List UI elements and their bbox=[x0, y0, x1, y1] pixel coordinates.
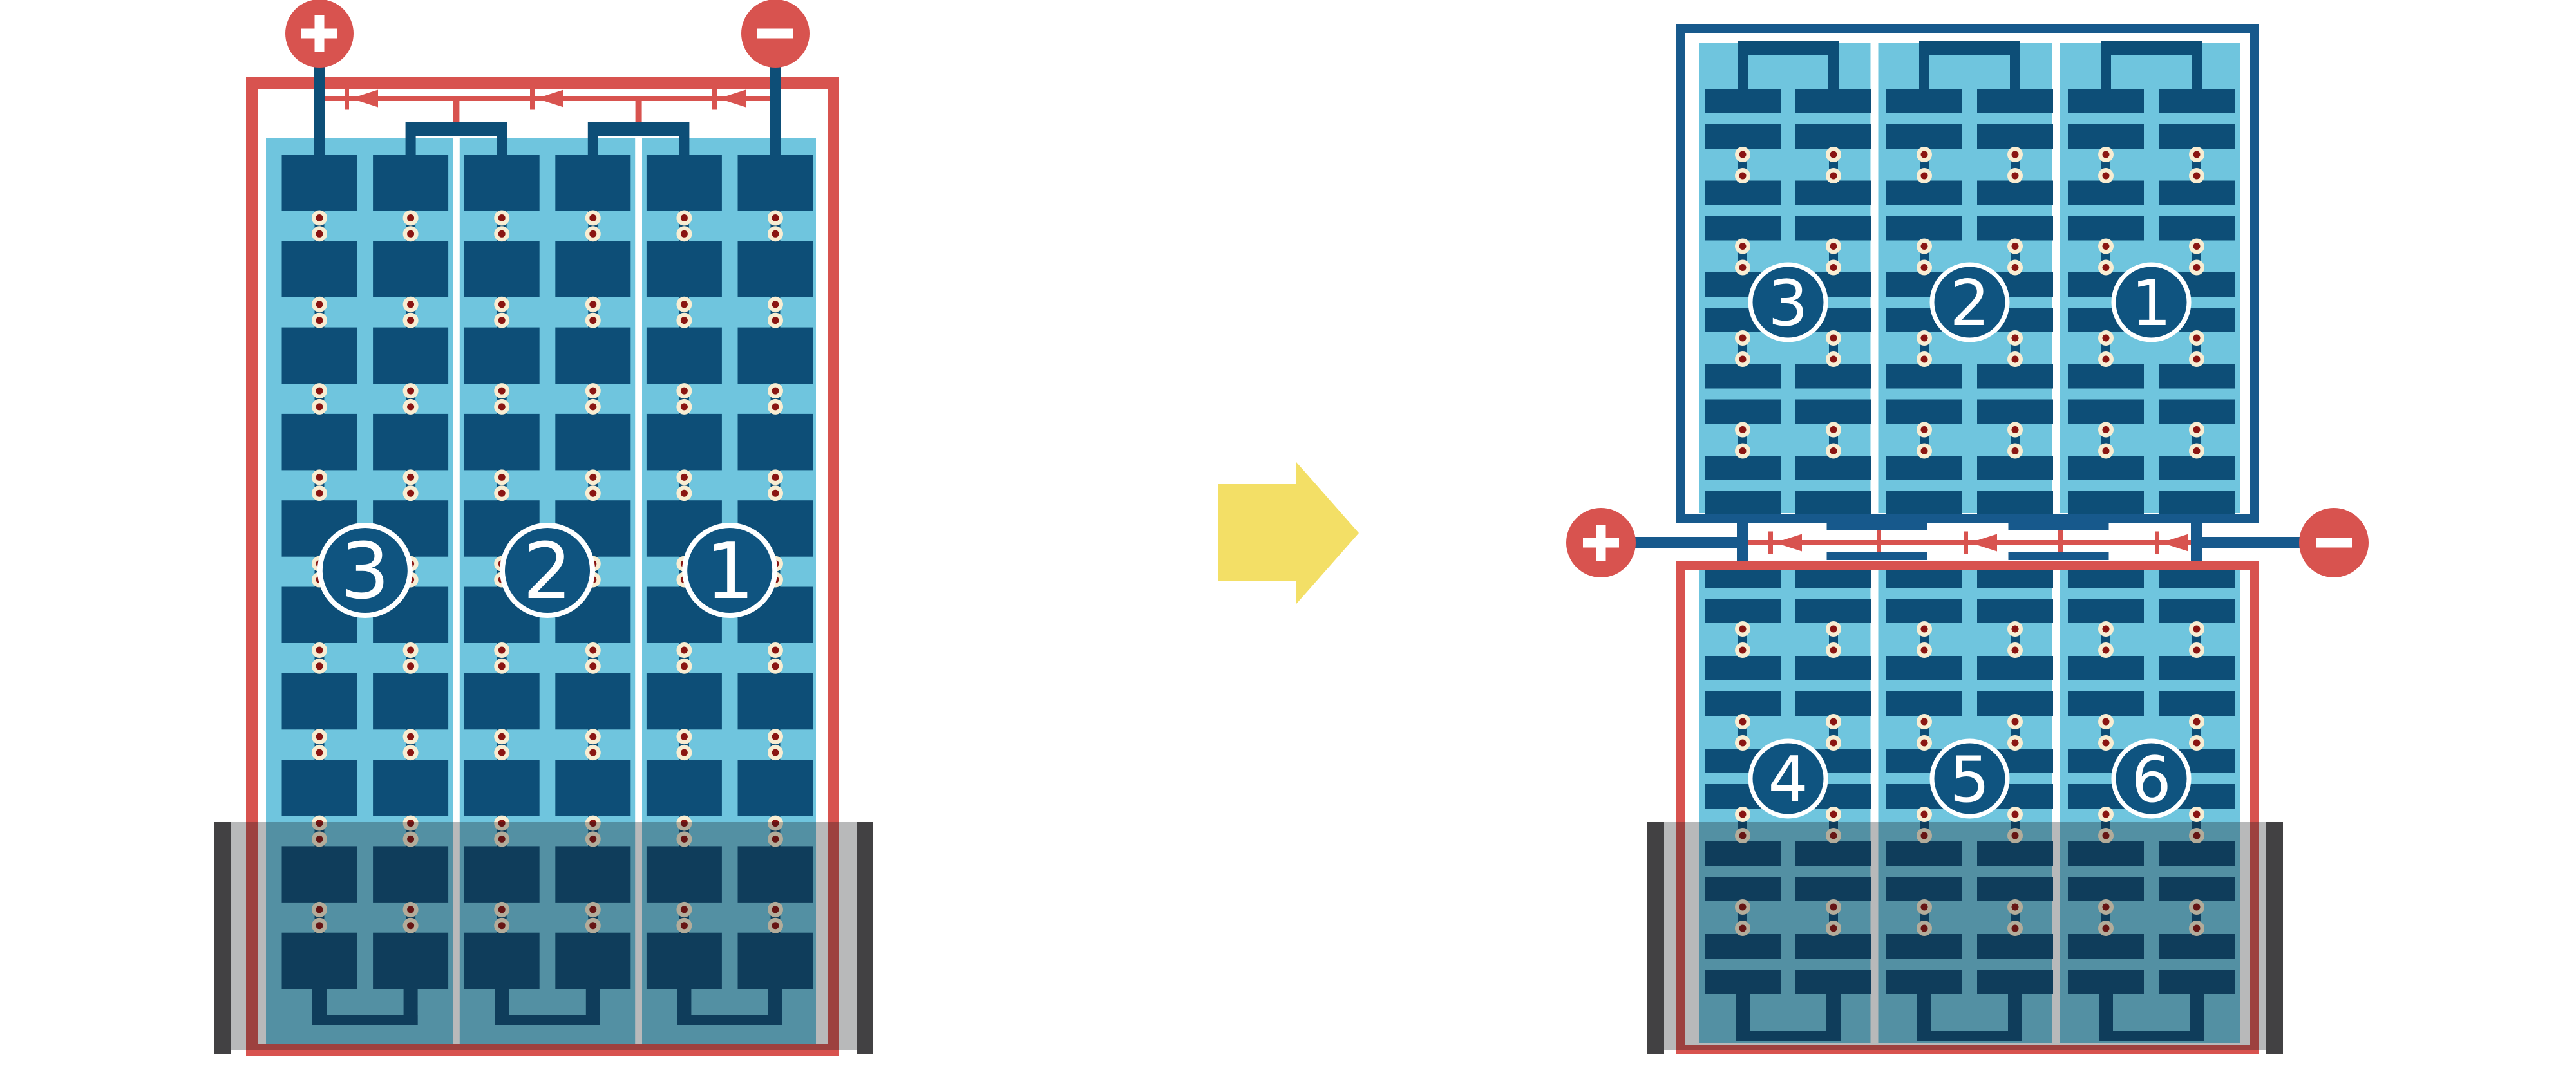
solar-cell bbox=[1886, 400, 1962, 424]
solder-dot-core bbox=[681, 490, 688, 497]
solar-cell bbox=[1886, 364, 1962, 389]
solder-dot-core bbox=[2103, 335, 2110, 342]
solder-dot-core bbox=[498, 749, 506, 756]
solder-dot-core bbox=[2103, 447, 2110, 454]
solder-dot-core bbox=[681, 474, 688, 481]
solder-dot-core bbox=[2012, 151, 2019, 158]
solder-dot-core bbox=[2012, 243, 2019, 250]
solder-dot-core bbox=[2103, 151, 2110, 158]
solder-dot-core bbox=[316, 490, 323, 497]
solder-dot-core bbox=[772, 230, 779, 238]
solar-cell bbox=[738, 328, 813, 384]
solder-dot-core bbox=[1739, 151, 1747, 158]
solar-cell bbox=[2068, 364, 2144, 389]
solder-dot-core bbox=[772, 733, 779, 740]
solder-dot-core bbox=[772, 662, 779, 670]
solder-dot-core bbox=[589, 749, 596, 756]
junction-tab bbox=[2009, 552, 2109, 560]
solar-cell bbox=[1977, 400, 2053, 424]
badge-number: 6 bbox=[2131, 744, 2171, 817]
solder-dot-core bbox=[2193, 647, 2201, 654]
solder-dot-core bbox=[407, 230, 414, 238]
solar-cell bbox=[2159, 691, 2235, 716]
solder-dot-core bbox=[2103, 626, 2110, 633]
solar-cell bbox=[1886, 570, 1962, 588]
solder-dot-core bbox=[2103, 264, 2110, 271]
solder-dot-core bbox=[407, 662, 414, 670]
junction-tab bbox=[2009, 523, 2109, 530]
solder-dot-core bbox=[681, 403, 688, 410]
string-bridge-leg bbox=[406, 136, 416, 156]
solder-dot-core bbox=[1739, 447, 1747, 454]
badge-number: 1 bbox=[705, 527, 754, 617]
solder-dot-core bbox=[1921, 356, 1928, 363]
string-bridge-leg bbox=[2010, 55, 2020, 89]
solar-cell bbox=[1886, 89, 1962, 113]
solder-dot-core bbox=[2103, 740, 2110, 747]
solar-cell bbox=[1886, 656, 1962, 680]
solder-dot-core bbox=[1830, 264, 1837, 271]
solar-cell bbox=[282, 414, 357, 471]
solar-cell bbox=[1795, 181, 1871, 205]
solder-dot-core bbox=[1739, 811, 1747, 818]
string-bridge-leg bbox=[2101, 55, 2111, 89]
solder-dot-core bbox=[2193, 356, 2201, 363]
flood-cap bbox=[2266, 822, 2283, 1054]
solar-cell bbox=[464, 155, 540, 211]
solar-cell bbox=[1705, 456, 1781, 480]
string-badge: 3 bbox=[1748, 263, 1828, 342]
solar-cell bbox=[2159, 656, 2235, 680]
badge-number: 3 bbox=[1768, 267, 1808, 341]
solar-cell bbox=[373, 155, 448, 211]
solder-dot-core bbox=[1830, 647, 1837, 654]
solder-dot-core bbox=[2193, 718, 2201, 726]
solar-cell bbox=[373, 414, 448, 471]
solder-dot-core bbox=[2012, 356, 2019, 363]
solder-dot-core bbox=[407, 749, 414, 756]
solar-cell bbox=[647, 414, 722, 471]
solder-dot-core bbox=[1739, 264, 1747, 271]
solar-cell bbox=[373, 328, 448, 384]
solder-dot-core bbox=[589, 662, 596, 670]
string-bridge-bar bbox=[2101, 41, 2202, 55]
badge-number: 3 bbox=[341, 527, 390, 617]
solar-cell bbox=[1795, 364, 1871, 389]
solder-dot-core bbox=[2103, 356, 2110, 363]
solar-cell bbox=[2068, 491, 2144, 516]
badge-number: 4 bbox=[1768, 744, 1808, 817]
diode-tap bbox=[1877, 529, 1881, 555]
solder-dot-core bbox=[1921, 426, 1928, 433]
solder-dot-core bbox=[1739, 173, 1747, 180]
solder-dot-core bbox=[1830, 718, 1837, 726]
solar-cell bbox=[2068, 181, 2144, 205]
solar-cell bbox=[1795, 570, 1871, 588]
solar-cell bbox=[1977, 570, 2053, 588]
solder-dot-core bbox=[2012, 647, 2019, 654]
solder-dot-core bbox=[498, 214, 506, 221]
string-bridge-leg bbox=[2192, 55, 2202, 89]
solder-dot-core bbox=[2193, 426, 2201, 433]
solar-cell bbox=[2159, 364, 2235, 389]
solar-cell bbox=[555, 241, 630, 297]
terminal-wire bbox=[2197, 537, 2301, 548]
solar-cell bbox=[1795, 691, 1871, 716]
string-bridge-leg bbox=[1738, 55, 1748, 89]
solar-cell bbox=[2068, 691, 2144, 716]
solder-dot-core bbox=[498, 733, 506, 740]
string-bridge-leg bbox=[497, 136, 507, 156]
solar-cell bbox=[647, 241, 722, 297]
solder-dot-core bbox=[1921, 626, 1928, 633]
solar-cell bbox=[1795, 216, 1871, 241]
solder-dot-core bbox=[498, 301, 506, 308]
solar-cell bbox=[2159, 216, 2235, 241]
solder-dot-core bbox=[316, 662, 323, 670]
solder-dot-core bbox=[1830, 811, 1837, 818]
solar-cell bbox=[2068, 570, 2144, 588]
solar-cell bbox=[738, 673, 813, 730]
bypass-diode-bar bbox=[712, 88, 717, 110]
solder-dot-core bbox=[1830, 151, 1837, 158]
solar-cell bbox=[555, 414, 630, 471]
terminal-wire bbox=[314, 59, 325, 161]
bypass-diode-arrow bbox=[1775, 534, 1802, 552]
solar-cell bbox=[464, 760, 540, 816]
solder-dot-core bbox=[1830, 426, 1837, 433]
string-bridge-bar bbox=[1919, 41, 2020, 55]
terminal-wire bbox=[770, 59, 781, 161]
solar-cell bbox=[2068, 216, 2144, 241]
solder-dot-core bbox=[1921, 151, 1928, 158]
solar-cell bbox=[2159, 456, 2235, 480]
solder-dot-core bbox=[1830, 626, 1837, 633]
solder-dot-core bbox=[1921, 740, 1928, 747]
solder-dot-core bbox=[1739, 740, 1747, 747]
diode-bus bbox=[1748, 540, 2191, 545]
string-bridge-leg bbox=[588, 136, 598, 156]
solar-cell bbox=[1977, 364, 2053, 389]
solar-cell bbox=[1977, 216, 2053, 241]
solder-dot-core bbox=[681, 733, 688, 740]
solar-cell bbox=[738, 760, 813, 816]
solar-cell bbox=[2159, 491, 2235, 516]
bypass-diode-bar bbox=[1768, 532, 1773, 554]
solder-dot-core bbox=[407, 490, 414, 497]
solder-dot-core bbox=[1830, 447, 1837, 454]
solder-dot-core bbox=[2012, 335, 2019, 342]
bypass-diode-arrow bbox=[351, 90, 378, 108]
solder-dot-core bbox=[1830, 173, 1837, 180]
solar-cell bbox=[555, 673, 630, 730]
solder-dot-core bbox=[589, 490, 596, 497]
solar-cell bbox=[1977, 599, 2053, 623]
string-bridge-bar bbox=[588, 122, 690, 136]
solar-cell bbox=[1705, 491, 1781, 516]
solar-cell bbox=[1705, 691, 1781, 716]
junction-tab bbox=[1827, 523, 1927, 530]
solar-cell bbox=[282, 155, 357, 211]
solder-dot-core bbox=[772, 647, 779, 654]
string-bridge-leg bbox=[1919, 55, 1929, 89]
solder-dot-core bbox=[316, 301, 323, 308]
solder-dot-core bbox=[498, 230, 506, 238]
solder-dot-core bbox=[2012, 626, 2019, 633]
solder-dot-core bbox=[2103, 647, 2110, 654]
transform-arrow bbox=[1218, 462, 1359, 604]
flood-cap bbox=[1647, 822, 1664, 1054]
solder-dot-core bbox=[681, 647, 688, 654]
string-bridge-bar bbox=[1738, 41, 1839, 55]
string-badge: 4 bbox=[1748, 739, 1828, 819]
terminal-wire bbox=[1633, 537, 1743, 548]
terminal-plus bbox=[285, 0, 354, 68]
solar-cell bbox=[282, 673, 357, 730]
terminal-plus bbox=[1566, 508, 1636, 577]
solar-cell bbox=[1886, 216, 1962, 241]
solar-cell bbox=[1795, 491, 1871, 516]
solar-cell bbox=[647, 760, 722, 816]
solder-dot-core bbox=[2012, 264, 2019, 271]
solar-cell bbox=[1795, 89, 1871, 113]
solder-dot-core bbox=[772, 388, 779, 395]
arrow-right-icon bbox=[1218, 462, 1359, 604]
solder-dot-core bbox=[2193, 173, 2201, 180]
solar-cell bbox=[2159, 400, 2235, 424]
solder-dot-core bbox=[316, 214, 323, 221]
solder-dot-core bbox=[589, 301, 596, 308]
solder-dot-core bbox=[2193, 243, 2201, 250]
minus-icon bbox=[2316, 538, 2352, 548]
flood-band bbox=[214, 822, 873, 1050]
solder-dot-core bbox=[316, 403, 323, 410]
solar-cell bbox=[1795, 656, 1871, 680]
solder-dot-core bbox=[681, 230, 688, 238]
solar-cell bbox=[647, 155, 722, 211]
flood-cap bbox=[214, 822, 231, 1054]
solar-cell bbox=[1705, 216, 1781, 241]
solder-dot-core bbox=[589, 403, 596, 410]
solder-dot-core bbox=[1739, 335, 1747, 342]
solar-cell bbox=[2159, 599, 2235, 623]
solder-dot-core bbox=[498, 317, 506, 324]
solder-dot-core bbox=[589, 733, 596, 740]
solder-dot-core bbox=[498, 662, 506, 670]
solder-dot-core bbox=[1739, 426, 1747, 433]
solder-dot-core bbox=[2193, 811, 2201, 818]
solar-cell bbox=[2068, 89, 2144, 113]
solar-cell bbox=[464, 241, 540, 297]
solar-cell bbox=[1705, 364, 1781, 389]
solder-dot-core bbox=[681, 214, 688, 221]
solder-dot-core bbox=[772, 474, 779, 481]
diode-tap bbox=[636, 98, 642, 122]
minus-icon bbox=[757, 29, 793, 39]
solar-cell bbox=[1977, 691, 2053, 716]
figure-root: 321321456 bbox=[0, 0, 2576, 1068]
solder-dot-core bbox=[2012, 740, 2019, 747]
column-separator bbox=[2052, 43, 2060, 513]
solder-dot-core bbox=[1921, 335, 1928, 342]
solar-cell bbox=[2068, 400, 2144, 424]
solar-cell bbox=[2159, 124, 2235, 149]
flood-band bbox=[1647, 822, 2283, 1050]
solar-cell bbox=[647, 673, 722, 730]
string-bridge-leg bbox=[679, 136, 689, 156]
solder-dot-core bbox=[2012, 426, 2019, 433]
solder-dot-core bbox=[2103, 811, 2110, 818]
solar-cell bbox=[1705, 89, 1781, 113]
solder-dot-core bbox=[498, 388, 506, 395]
solder-dot-core bbox=[2012, 447, 2019, 454]
solar-cell bbox=[1977, 89, 2053, 113]
solar-cell bbox=[464, 673, 540, 730]
solder-dot-core bbox=[772, 403, 779, 410]
solar-cell bbox=[2159, 570, 2235, 588]
string-badge: 1 bbox=[682, 523, 777, 618]
solder-dot-core bbox=[1921, 173, 1928, 180]
solder-dot-core bbox=[1830, 243, 1837, 250]
solar-cell bbox=[282, 328, 357, 384]
diode-tap bbox=[453, 98, 459, 122]
column-separator bbox=[1871, 43, 1879, 513]
solar-cell bbox=[282, 241, 357, 297]
solar-cell bbox=[464, 328, 540, 384]
string-badge: 5 bbox=[1930, 739, 2010, 819]
plus-icon bbox=[1596, 525, 1606, 561]
solder-dot-core bbox=[1739, 647, 1747, 654]
solar-cell bbox=[1795, 400, 1871, 424]
flood-cap bbox=[857, 822, 873, 1054]
solder-dot-core bbox=[407, 317, 414, 324]
solar-cell bbox=[555, 328, 630, 384]
solder-dot-core bbox=[407, 403, 414, 410]
solar-cell bbox=[2068, 656, 2144, 680]
solder-dot-core bbox=[316, 474, 323, 481]
solder-dot-core bbox=[2193, 626, 2201, 633]
solder-dot-core bbox=[2193, 447, 2201, 454]
solder-dot-core bbox=[407, 214, 414, 221]
solder-dot-core bbox=[589, 317, 596, 324]
solar-cell bbox=[1886, 599, 1962, 623]
solder-dot-core bbox=[407, 733, 414, 740]
solder-dot-core bbox=[2103, 173, 2110, 180]
solar-cell bbox=[1977, 456, 2053, 480]
solar-cell bbox=[2159, 89, 2235, 113]
solar-cell bbox=[1977, 124, 2053, 149]
solder-dot-core bbox=[772, 214, 779, 221]
solar-cell bbox=[1886, 124, 1962, 149]
badge-number: 5 bbox=[1949, 744, 1989, 817]
solar-cell bbox=[555, 155, 630, 211]
solar-cell bbox=[1705, 656, 1781, 680]
solder-dot-core bbox=[498, 403, 506, 410]
solar-cell bbox=[738, 155, 813, 211]
solder-dot-core bbox=[316, 230, 323, 238]
solder-dot-core bbox=[316, 317, 323, 324]
solder-dot-core bbox=[589, 230, 596, 238]
solar-cell bbox=[1795, 599, 1871, 623]
solar-cell bbox=[2068, 599, 2144, 623]
upper-panel: 321 bbox=[1680, 29, 2255, 518]
solar-cell bbox=[1705, 599, 1781, 623]
diode-tap bbox=[2058, 529, 2063, 555]
solder-dot-core bbox=[498, 474, 506, 481]
string-badge: 3 bbox=[317, 523, 413, 618]
bypass-diode-arrow bbox=[719, 90, 746, 108]
string-badge: 6 bbox=[2112, 739, 2192, 819]
bypass-diode-bar bbox=[1964, 532, 1968, 554]
solder-dot-core bbox=[2103, 426, 2110, 433]
solder-dot-core bbox=[1921, 447, 1928, 454]
solder-dot-core bbox=[681, 749, 688, 756]
solder-dot-core bbox=[316, 388, 323, 395]
bypass-diode-arrow bbox=[1970, 534, 1997, 552]
solder-dot-core bbox=[589, 474, 596, 481]
solar-cell bbox=[464, 414, 540, 471]
solar-cell bbox=[373, 241, 448, 297]
solder-dot-core bbox=[2012, 718, 2019, 726]
solar-cell bbox=[1795, 124, 1871, 149]
solder-dot-core bbox=[589, 214, 596, 221]
plus-icon bbox=[315, 15, 325, 52]
diagram-canvas: 321321456 bbox=[0, 0, 2576, 1068]
solder-dot-core bbox=[681, 662, 688, 670]
solar-cell bbox=[1977, 656, 2053, 680]
solar-cell bbox=[738, 414, 813, 471]
terminal-minus bbox=[741, 0, 810, 68]
solder-dot-core bbox=[1739, 356, 1747, 363]
string-bridge-bar bbox=[406, 122, 507, 136]
solar-cell bbox=[2068, 124, 2144, 149]
solder-dot-core bbox=[1739, 626, 1747, 633]
solder-dot-core bbox=[498, 647, 506, 654]
solder-dot-core bbox=[2193, 335, 2201, 342]
solar-cell bbox=[1705, 570, 1781, 588]
solar-cell bbox=[1886, 691, 1962, 716]
solder-dot-core bbox=[681, 388, 688, 395]
badge-number: 2 bbox=[1949, 267, 1989, 341]
solder-dot-core bbox=[407, 301, 414, 308]
solder-dot-core bbox=[1739, 243, 1747, 250]
solder-dot-core bbox=[2193, 264, 2201, 271]
solar-cell bbox=[282, 760, 357, 816]
flood-water bbox=[214, 822, 2283, 1054]
solder-dot-core bbox=[2012, 173, 2019, 180]
solar-cell bbox=[1886, 456, 1962, 480]
solder-dot-core bbox=[772, 301, 779, 308]
solar-cell bbox=[647, 328, 722, 384]
solder-dot-core bbox=[1921, 243, 1928, 250]
badge-number: 1 bbox=[2131, 267, 2171, 341]
badge-number: 2 bbox=[523, 527, 572, 617]
solder-dot-core bbox=[2193, 740, 2201, 747]
solar-cell bbox=[1886, 491, 1962, 516]
solder-dot-core bbox=[2193, 151, 2201, 158]
solar-cell bbox=[2068, 456, 2144, 480]
solar-cell bbox=[1977, 181, 2053, 205]
solder-dot-core bbox=[1830, 335, 1837, 342]
string-badge: 2 bbox=[1930, 263, 2010, 342]
solar-cell bbox=[2159, 181, 2235, 205]
bypass-diode-arrow bbox=[536, 90, 563, 108]
solder-dot-core bbox=[407, 388, 414, 395]
solar-cell bbox=[1705, 124, 1781, 149]
bypass-diode-bar bbox=[2155, 532, 2159, 554]
solder-dot-core bbox=[2103, 243, 2110, 250]
solder-dot-core bbox=[1921, 811, 1928, 818]
